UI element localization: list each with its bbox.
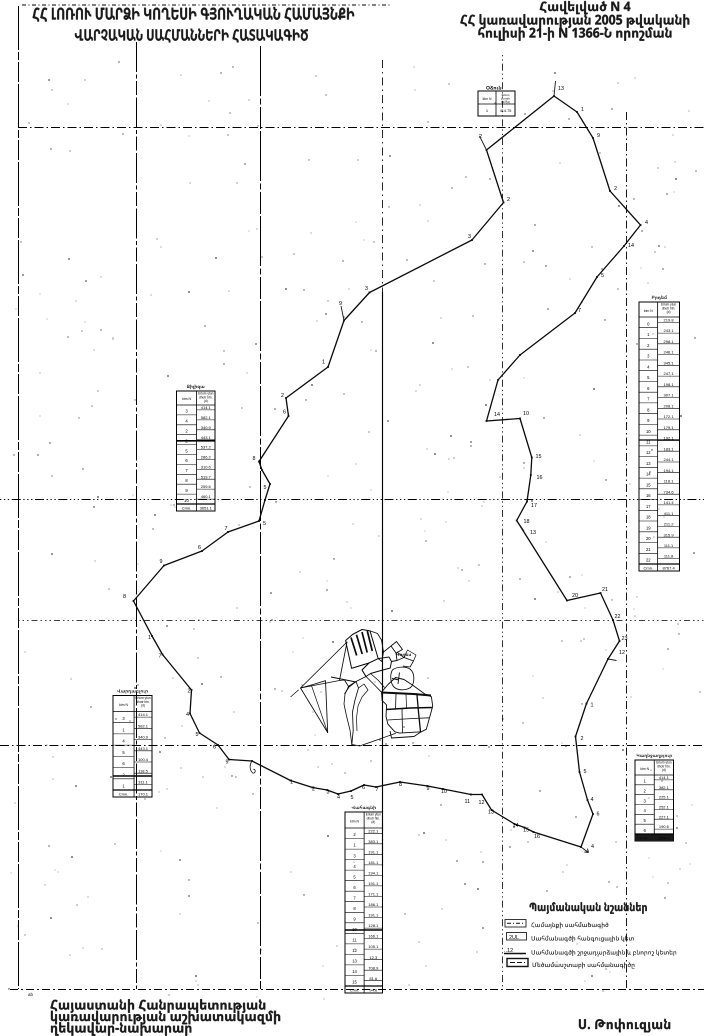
svg-text:ktm N: ktm N: [644, 309, 653, 313]
svg-text:22: 22: [615, 614, 621, 620]
svg-text:708.9: 708.9: [368, 965, 379, 970]
svg-text:6: 6: [185, 458, 188, 463]
svg-text:8: 8: [123, 594, 126, 600]
svg-text:243.1: 243.1: [664, 328, 675, 333]
svg-text:3: 3: [647, 354, 650, 359]
svg-text:9: 9: [353, 917, 356, 922]
svg-text:1: 1: [290, 780, 293, 786]
svg-text:118.1: 118.1: [664, 479, 674, 484]
svg-text:1: 1: [486, 108, 489, 113]
svg-text:227.1: 227.1: [659, 814, 670, 819]
svg-text:13: 13: [558, 86, 564, 92]
svg-text:5: 5: [643, 818, 646, 823]
svg-text:311.1: 311.1: [138, 780, 148, 785]
svg-text:2: 2: [281, 393, 284, 399]
svg-text:15: 15: [523, 828, 529, 834]
svg-text:7: 7: [647, 397, 650, 402]
svg-text:13: 13: [488, 810, 494, 816]
svg-text:8: 8: [253, 456, 256, 462]
svg-text:15: 15: [646, 483, 651, 488]
svg-text:23: 23: [622, 636, 628, 642]
svg-text:4: 4: [122, 739, 125, 744]
svg-text:259.6: 259.6: [201, 484, 212, 489]
svg-text:5: 5: [185, 448, 188, 453]
svg-text:247.1: 247.1: [664, 371, 675, 376]
svg-text:11: 11: [352, 938, 357, 943]
svg-text:186.1: 186.1: [368, 902, 379, 907]
svg-text:315.9: 315.9: [664, 532, 675, 537]
svg-text:6: 6: [353, 885, 356, 890]
svg-text:443.1: 443.1: [201, 435, 212, 440]
svg-text:111.1: 111.1: [664, 543, 674, 548]
svg-text:6: 6: [362, 785, 365, 791]
svg-text:14: 14: [628, 243, 634, 249]
svg-text:128.1: 128.1: [368, 923, 379, 928]
svg-text:6: 6: [283, 410, 286, 416]
svg-text:2: 2: [188, 689, 191, 695]
svg-text:443.1: 443.1: [138, 746, 149, 751]
svg-text:8: 8: [399, 782, 402, 788]
svg-text:414.1: 414.1: [201, 405, 212, 410]
svg-text:(d): (d): [141, 704, 145, 708]
svg-text:7: 7: [578, 308, 581, 314]
svg-text:537.2: 537.2: [201, 445, 212, 450]
svg-text:9: 9: [226, 760, 229, 766]
svg-text:21: 21: [602, 587, 608, 593]
svg-text:1: 1: [591, 703, 594, 709]
svg-text:12.3: 12.3: [369, 955, 378, 960]
svg-text:1: 1: [647, 332, 650, 337]
svg-text:13: 13: [530, 530, 536, 536]
svg-text:100.4: 100.4: [138, 757, 149, 762]
svg-text:1904.1: 1904.1: [658, 835, 671, 840]
svg-text:172.1: 172.1: [664, 414, 675, 419]
svg-text:211.2: 211.2: [664, 522, 674, 527]
svg-text:ktm N: ktm N: [119, 703, 128, 707]
svg-text:8: 8: [647, 407, 650, 412]
svg-text:ab: ab: [28, 992, 34, 997]
svg-text:1: 1: [353, 843, 356, 848]
svg-text:7: 7: [159, 654, 162, 660]
svg-text:5: 5: [196, 732, 199, 738]
svg-text:20: 20: [572, 593, 578, 599]
svg-text:81.6: 81.6: [369, 976, 378, 981]
svg-text:8767.4: 8767.4: [662, 565, 675, 570]
svg-text:2: 2: [647, 343, 650, 348]
svg-text:414.1: 414.1: [659, 775, 670, 780]
svg-text:12: 12: [619, 650, 625, 656]
svg-text:6: 6: [213, 745, 216, 751]
svg-text:Cmn.: Cmn.: [640, 835, 650, 840]
svg-text:18: 18: [524, 519, 530, 525]
svg-text:382.1: 382.1: [659, 785, 670, 790]
svg-text:3: 3: [327, 790, 330, 796]
svg-text:414.75: 414.75: [500, 109, 512, 113]
svg-text:414.1: 414.1: [138, 712, 149, 717]
svg-text:9: 9: [339, 301, 342, 307]
svg-text:1: 1: [643, 779, 646, 784]
svg-text:6: 6: [643, 828, 646, 833]
svg-text:8: 8: [353, 906, 356, 911]
svg-text:10: 10: [646, 429, 651, 434]
svg-text:*: *: [8, 988, 10, 994]
svg-text:13: 13: [646, 461, 651, 466]
svg-text:16: 16: [646, 493, 651, 498]
svg-text:Cmn.: Cmn.: [119, 791, 129, 796]
svg-text:2: 2: [185, 429, 188, 434]
svg-text:10: 10: [523, 411, 529, 417]
svg-text:9: 9: [160, 559, 163, 565]
svg-text:3: 3: [365, 286, 368, 292]
svg-text:2: 2: [353, 832, 356, 837]
svg-text:4: 4: [337, 795, 340, 801]
svg-text:734.6: 734.6: [664, 489, 675, 494]
svg-text:6: 6: [198, 545, 201, 551]
svg-text:340.9: 340.9: [201, 425, 212, 430]
svg-text:3: 3: [185, 409, 188, 414]
svg-text:13: 13: [352, 959, 357, 964]
svg-text:411.1: 411.1: [664, 511, 674, 516]
svg-text:17: 17: [531, 503, 537, 509]
svg-text:ktm N: ktm N: [640, 767, 649, 771]
svg-text:286.2: 286.2: [201, 455, 212, 460]
svg-text:191.1: 191.1: [368, 913, 379, 918]
svg-text:3: 3: [468, 234, 471, 240]
svg-text:7: 7: [376, 787, 379, 793]
svg-text:198.1: 198.1: [664, 382, 675, 387]
svg-text:14: 14: [513, 823, 519, 829]
svg-text:11: 11: [465, 799, 471, 805]
svg-text:4: 4: [353, 864, 356, 869]
svg-text:21: 21: [646, 547, 651, 552]
svg-text:3651.1: 3651.1: [200, 505, 213, 510]
svg-text:16: 16: [534, 834, 540, 840]
svg-text:181.1: 181.1: [368, 860, 379, 865]
svg-text:17: 17: [646, 504, 651, 509]
svg-text:2: 2: [643, 789, 646, 794]
svg-text:1: 1: [581, 107, 584, 113]
svg-text:3: 3: [122, 716, 125, 721]
svg-text:170.1: 170.1: [138, 791, 149, 796]
svg-text:166.1: 166.1: [368, 934, 379, 939]
svg-text:ktm N: ktm N: [483, 97, 492, 101]
svg-text:9: 9: [427, 786, 430, 792]
svg-text:5: 5: [353, 874, 356, 879]
svg-text:3: 3: [353, 853, 356, 858]
svg-text:6: 6: [122, 761, 125, 766]
svg-text:7: 7: [185, 468, 188, 473]
svg-text:105.1: 105.1: [368, 944, 379, 949]
svg-text:141.4: 141.4: [664, 500, 675, 505]
svg-text:340.9: 340.9: [138, 735, 149, 740]
svg-text:194.1: 194.1: [368, 871, 379, 876]
svg-text:191.1: 191.1: [368, 849, 379, 854]
svg-text:219.8: 219.8: [664, 318, 675, 323]
svg-text:(d): (d): [662, 768, 666, 772]
svg-text:12: 12: [646, 450, 651, 455]
svg-text:519.7: 519.7: [201, 474, 212, 479]
svg-text:4: 4: [591, 797, 594, 803]
svg-text:16: 16: [537, 475, 543, 481]
svg-text:htn.(d): htn.(d): [501, 100, 510, 104]
svg-text:Cmn.: Cmn.: [350, 987, 360, 992]
svg-text:2UL: 2UL: [509, 935, 519, 941]
svg-text:190.6: 190.6: [659, 824, 670, 829]
svg-text:191.1: 191.1: [368, 881, 379, 886]
svg-text:4: 4: [645, 220, 648, 226]
svg-text:208.1: 208.1: [664, 403, 675, 408]
svg-text:9: 9: [185, 488, 188, 493]
svg-text:8: 8: [185, 478, 188, 483]
svg-text:5: 5: [122, 750, 125, 755]
svg-text:307.1: 307.1: [664, 393, 675, 398]
svg-text:5: 5: [263, 521, 266, 527]
svg-text:19: 19: [646, 525, 651, 530]
svg-text:12: 12: [479, 800, 485, 806]
svg-text:5: 5: [647, 375, 650, 380]
svg-text:1: 1: [148, 635, 151, 641]
svg-text:4: 4: [647, 364, 650, 369]
svg-text:2: 2: [507, 197, 510, 203]
svg-text:252.1: 252.1: [659, 805, 670, 810]
svg-text:244.1: 244.1: [664, 457, 675, 462]
svg-text:12: 12: [352, 948, 357, 953]
svg-text:582.1: 582.1: [201, 415, 212, 420]
svg-text:3: 3: [643, 798, 646, 803]
svg-text:7: 7: [225, 526, 228, 532]
svg-text:10: 10: [184, 498, 189, 503]
svg-text:183.1: 183.1: [664, 446, 675, 451]
svg-text:1: 1: [122, 728, 125, 733]
svg-text:9: 9: [647, 418, 650, 423]
svg-text:383.1: 383.1: [368, 839, 379, 844]
svg-text:94.6: 94.6: [369, 987, 378, 992]
svg-text:582.1: 582.1: [138, 723, 149, 728]
svg-text:5: 5: [584, 769, 587, 775]
svg-text:0: 0: [647, 321, 650, 326]
svg-text:460.1: 460.1: [201, 494, 212, 499]
svg-text:225.1: 225.1: [659, 795, 670, 800]
svg-text:ktm N: ktm N: [350, 819, 359, 823]
svg-text:222.1: 222.1: [368, 828, 379, 833]
svg-text:4: 4: [591, 844, 594, 850]
svg-text:298.1: 298.1: [664, 339, 675, 344]
svg-text:Cmn.: Cmn.: [182, 505, 192, 510]
svg-text:15: 15: [352, 980, 357, 985]
svg-text:4: 4: [643, 808, 646, 813]
svg-text:18: 18: [646, 515, 651, 520]
svg-text:5: 5: [351, 795, 354, 801]
svg-text:Cmn.: Cmn.: [644, 565, 654, 570]
svg-text:15: 15: [536, 454, 542, 460]
svg-text:5: 5: [601, 273, 604, 279]
svg-text:4: 4: [186, 712, 189, 718]
svg-text:(d): (d): [667, 310, 671, 314]
svg-text:22: 22: [646, 558, 651, 563]
svg-text:310.6: 310.6: [201, 465, 212, 470]
svg-text:194.1: 194.1: [664, 468, 675, 473]
svg-text:(d): (d): [371, 820, 375, 824]
svg-text:2: 2: [614, 186, 617, 192]
svg-text:7: 7: [353, 895, 356, 900]
svg-text:246.1: 246.1: [664, 350, 675, 355]
svg-text:1: 1: [322, 360, 325, 366]
svg-text:171.1: 171.1: [368, 892, 379, 897]
svg-text:111.8: 111.8: [664, 554, 674, 559]
svg-text:14: 14: [494, 412, 500, 418]
svg-text:5: 5: [264, 485, 267, 491]
svg-text:118.5: 118.5: [138, 768, 148, 773]
svg-text:6: 6: [597, 812, 600, 818]
svg-text:9: 9: [597, 133, 600, 139]
svg-text:1: 1: [122, 784, 125, 789]
svg-text:14: 14: [646, 472, 651, 477]
svg-text:ktm N: ktm N: [182, 397, 191, 401]
svg-text:(d): (d): [204, 399, 208, 403]
svg-text:4: 4: [185, 419, 188, 424]
svg-text:10: 10: [441, 789, 447, 795]
svg-text:14: 14: [352, 969, 357, 974]
svg-text:6: 6: [647, 386, 650, 391]
svg-text:2: 2: [479, 134, 482, 140]
svg-text:179.1: 179.1: [664, 425, 675, 430]
svg-text:20: 20: [646, 536, 651, 541]
svg-text:2: 2: [312, 787, 315, 793]
svg-text:2: 2: [581, 736, 584, 742]
svg-text:345.1: 345.1: [664, 360, 675, 365]
